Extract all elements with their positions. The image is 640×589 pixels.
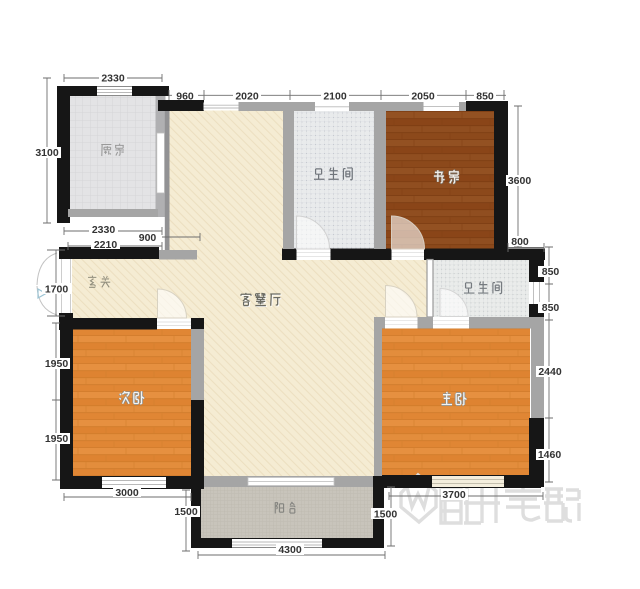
svg-text:4300: 4300 [278, 544, 302, 556]
svg-text:3000: 3000 [115, 487, 139, 499]
svg-text:3100: 3100 [35, 147, 59, 159]
svg-text:1500: 1500 [374, 509, 398, 521]
svg-text:2330: 2330 [92, 224, 116, 236]
svg-text:850: 850 [542, 266, 560, 278]
svg-text:3700: 3700 [442, 489, 466, 501]
svg-text:2210: 2210 [94, 239, 118, 251]
svg-text:900: 900 [139, 232, 157, 244]
svg-text:2050: 2050 [411, 91, 435, 103]
svg-text:1950: 1950 [45, 358, 69, 370]
svg-text:2100: 2100 [323, 91, 347, 103]
svg-text:2020: 2020 [235, 91, 259, 103]
svg-text:1500: 1500 [174, 506, 198, 518]
svg-text:1460: 1460 [538, 449, 562, 461]
svg-text:960: 960 [176, 91, 194, 103]
svg-text:800: 800 [511, 236, 529, 248]
svg-text:1700: 1700 [45, 284, 69, 296]
svg-text:2440: 2440 [538, 366, 562, 378]
svg-text:850: 850 [476, 91, 494, 103]
svg-text:850: 850 [542, 302, 560, 314]
svg-text:1950: 1950 [45, 433, 69, 445]
svg-text:3600: 3600 [508, 175, 532, 187]
svg-text:2330: 2330 [101, 73, 125, 85]
